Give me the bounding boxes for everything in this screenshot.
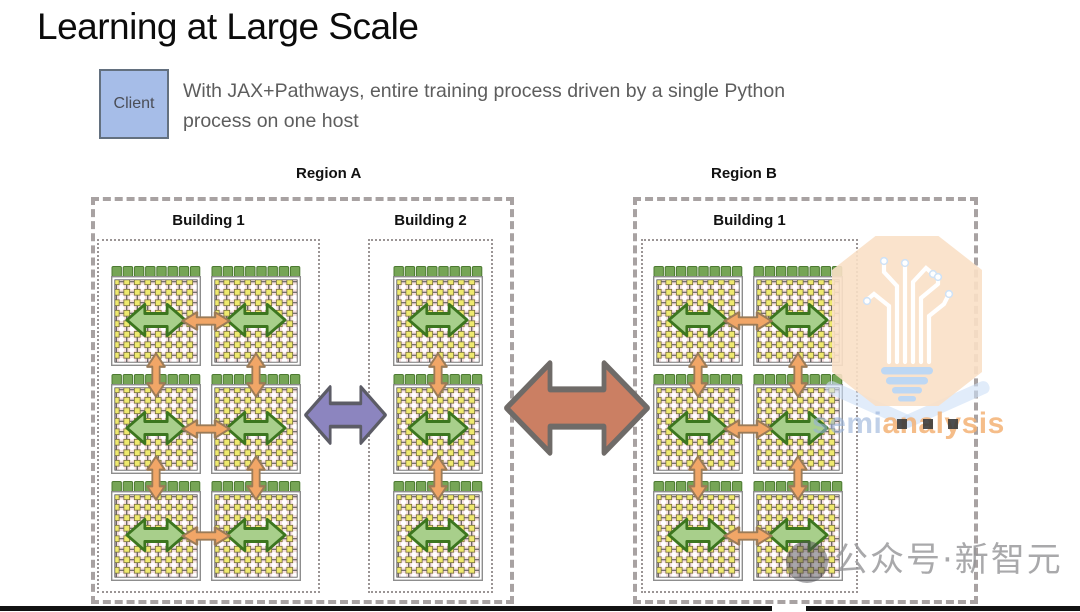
subtitle-line-1: With JAX+Pathways, entire training proce… (183, 76, 785, 106)
pod-link-arrow-icon (181, 310, 231, 332)
pod-link-arrow-icon (245, 352, 267, 398)
bottom-frame-bar-right (806, 606, 1080, 611)
pod-link-arrow-icon (723, 310, 773, 332)
inter-building-arrow-icon (303, 380, 388, 450)
region-a-label: Region A (296, 165, 361, 182)
tpu-pod (393, 266, 483, 366)
more-pods-ellipsis-dot (897, 419, 907, 429)
subtitle-line-2: process on one host (183, 106, 785, 136)
pod-link-arrow-icon (723, 418, 773, 440)
pod-link-arrow-icon (427, 455, 449, 501)
pod-link-arrow-icon (245, 455, 267, 501)
slide-canvas: Learning at Large Scale Client With JAX+… (0, 0, 1080, 612)
more-pods-ellipsis-dot (923, 419, 933, 429)
wechat-watermark-text: 公众号·新智元 (834, 532, 1063, 581)
pod-link-arrow-icon (723, 525, 773, 547)
subtitle-text: With JAX+Pathways, entire training proce… (183, 76, 785, 136)
pod-link-arrow-icon (687, 352, 709, 398)
brand-semi: semi (812, 407, 882, 440)
semianalysis-logo-watermark (832, 236, 982, 406)
page-title: Learning at Large Scale (37, 6, 418, 48)
pod-link-arrow-icon (145, 352, 167, 398)
semianalysis-wordmark: semianalysis (812, 407, 1005, 441)
client-label: Client (114, 95, 155, 113)
bottom-frame-bar-left (0, 606, 772, 611)
client-box: Client (99, 69, 169, 139)
more-pods-ellipsis-dot (948, 419, 958, 429)
inter-region-arrow-icon (502, 352, 652, 464)
circuit-tree-icon (832, 236, 982, 406)
region-b-building-1-label: Building 1 (641, 212, 858, 229)
pod-link-arrow-icon (787, 352, 809, 398)
region-a-building-1-label: Building 1 (97, 212, 320, 229)
pod-link-arrow-icon (181, 525, 231, 547)
region-a-building-2-label: Building 2 (368, 212, 493, 229)
pod-link-arrow-icon (427, 352, 449, 398)
region-b-label: Region B (711, 165, 777, 182)
pod-link-arrow-icon (787, 455, 809, 501)
pod-link-arrow-icon (145, 455, 167, 501)
pod-link-arrow-icon (181, 418, 231, 440)
wechat-account-logo-icon (786, 541, 828, 583)
pod-link-arrow-icon (687, 455, 709, 501)
